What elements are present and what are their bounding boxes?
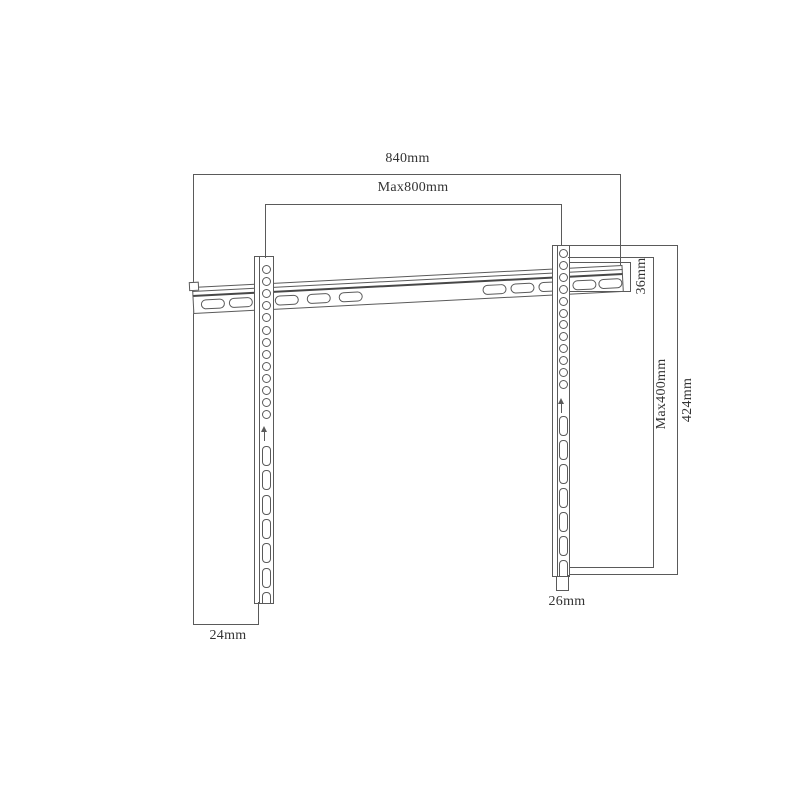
dim-max400-ext-bottom — [570, 567, 654, 568]
rail-slot — [510, 283, 534, 294]
bracket-slot-hole — [262, 446, 271, 466]
bracket-round-hole — [262, 277, 271, 286]
rail-slot — [307, 293, 331, 304]
dim-424-ext-bottom — [570, 574, 678, 575]
bracket-round-hole — [559, 273, 568, 282]
bracket-round-hole — [559, 285, 568, 294]
dim-36-line — [630, 262, 631, 291]
dim-840-ext-left — [193, 174, 194, 625]
dim-36-ext-bottom — [570, 291, 631, 292]
bracket-round-hole — [559, 380, 568, 389]
rail-left-flange — [189, 282, 199, 291]
bracket-round-hole — [559, 309, 568, 318]
dim-24-line — [193, 624, 259, 625]
bracket-round-hole — [262, 289, 271, 298]
dim-424-ext-top — [568, 245, 678, 246]
bracket-round-hole — [262, 398, 271, 407]
dim-424-label: 424mm — [680, 375, 696, 425]
dim-max800-ext-left — [265, 204, 266, 258]
dim-max400-label: Max400mm — [654, 357, 670, 431]
bracket-slot-hole — [262, 470, 271, 490]
bracket-round-hole — [262, 410, 271, 419]
arrow-shaft — [264, 431, 265, 441]
dim-424-line — [677, 245, 678, 574]
bracket-round-hole — [559, 368, 568, 377]
dim-26-label: 26mm — [542, 594, 592, 610]
alignment-arrow-icon — [261, 426, 268, 441]
bracket-round-hole — [262, 301, 271, 310]
bracket-slot-hole — [262, 543, 271, 563]
dim-840-label: 840mm — [194, 151, 621, 167]
bracket-round-hole — [262, 326, 271, 335]
dim-24-ext-right — [258, 602, 259, 625]
bracket-round-hole — [559, 356, 568, 365]
rail-right-cap — [621, 265, 623, 291]
dim-26-line — [556, 590, 569, 591]
rail-slot — [598, 278, 622, 289]
bracket-round-hole — [559, 320, 568, 329]
rail-slot — [482, 284, 506, 295]
left-bracket — [254, 256, 274, 604]
bracket-slot-hole — [559, 416, 568, 436]
dim-max800-line — [265, 204, 561, 205]
dim-840-ext-right — [620, 175, 621, 266]
bracket-slot-hole — [262, 592, 271, 604]
diagram-canvas: 840mm Max800mm 36mm — [0, 0, 800, 800]
bracket-slot-hole — [559, 536, 568, 556]
bracket-round-hole — [262, 350, 271, 359]
bracket-round-hole — [262, 386, 271, 395]
dim-max800-ext-right — [561, 204, 562, 246]
dim-26-ext-left — [556, 576, 557, 590]
bracket-round-hole — [262, 338, 271, 347]
bracket-round-hole — [559, 261, 568, 270]
dim-24-label: 24mm — [203, 628, 253, 644]
rail-slot — [229, 297, 253, 308]
dim-840-line — [194, 174, 621, 175]
rail-slot — [201, 298, 225, 309]
bracket-slot-hole — [559, 512, 568, 532]
bracket-round-hole — [262, 313, 271, 322]
bracket-round-hole — [559, 249, 568, 258]
rail-slot — [572, 279, 596, 290]
left-bracket-fold-line — [259, 257, 260, 603]
alignment-arrow-icon — [558, 398, 565, 413]
dim-36-ext-top — [570, 262, 631, 263]
dim-max800-label: Max800mm — [265, 180, 561, 196]
bracket-slot-hole — [262, 568, 271, 588]
bracket-slot-hole — [262, 519, 271, 539]
bracket-round-hole — [559, 297, 568, 306]
bracket-round-hole — [559, 344, 568, 353]
right-bracket — [552, 245, 570, 577]
bracket-slot-hole — [559, 440, 568, 460]
rail-slot — [338, 291, 362, 302]
bracket-slot-hole — [559, 560, 568, 577]
arrow-shaft — [561, 403, 562, 413]
bracket-round-hole — [559, 332, 568, 341]
bracket-slot-hole — [262, 495, 271, 515]
bracket-round-hole — [262, 265, 271, 274]
bracket-slot-hole — [559, 464, 568, 484]
bracket-round-hole — [262, 362, 271, 371]
dim-26-ext-right — [568, 575, 569, 590]
dim-36-label: 36mm — [634, 255, 650, 297]
bracket-slot-hole — [559, 488, 568, 508]
rail-slot — [275, 295, 299, 306]
bracket-round-hole — [262, 374, 271, 383]
